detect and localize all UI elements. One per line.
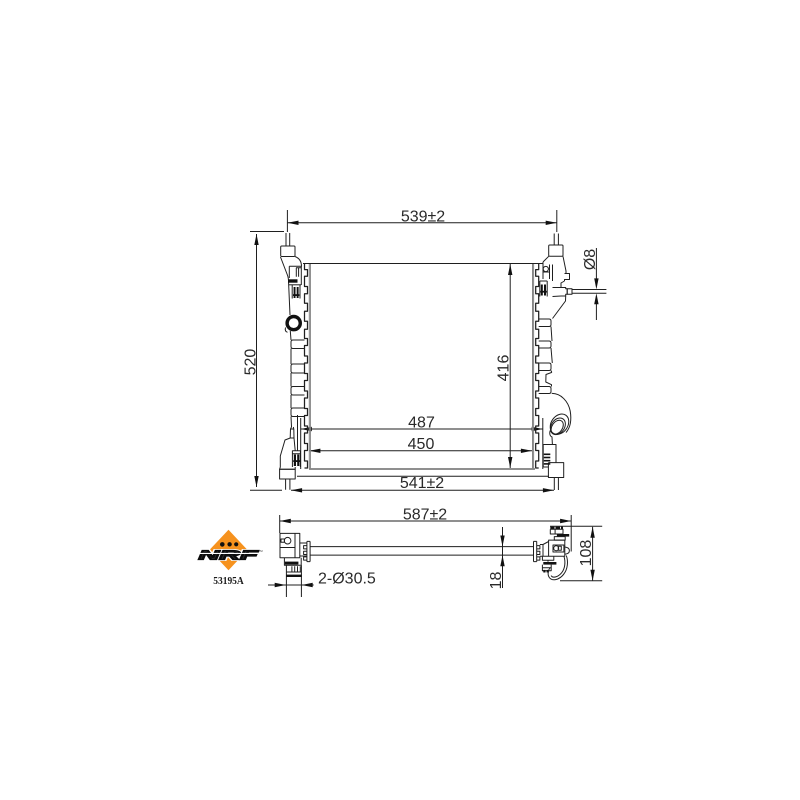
svg-text:487: 487 bbox=[408, 414, 435, 431]
svg-text:587±2: 587±2 bbox=[403, 507, 447, 524]
svg-text:450: 450 bbox=[408, 436, 435, 453]
svg-text:520: 520 bbox=[243, 349, 260, 376]
svg-text:2-Ø30.5: 2-Ø30.5 bbox=[318, 571, 376, 588]
svg-text:Ø8: Ø8 bbox=[582, 249, 599, 270]
svg-text:416: 416 bbox=[496, 355, 513, 382]
svg-text:541±2: 541±2 bbox=[400, 475, 444, 492]
svg-text:53195A: 53195A bbox=[213, 576, 244, 587]
svg-text:108: 108 bbox=[578, 540, 595, 567]
svg-text:NRF: NRF bbox=[199, 548, 260, 563]
svg-text:18: 18 bbox=[488, 572, 505, 590]
svg-text:TM: TM bbox=[259, 549, 264, 553]
svg-text:539±2: 539±2 bbox=[401, 208, 445, 225]
